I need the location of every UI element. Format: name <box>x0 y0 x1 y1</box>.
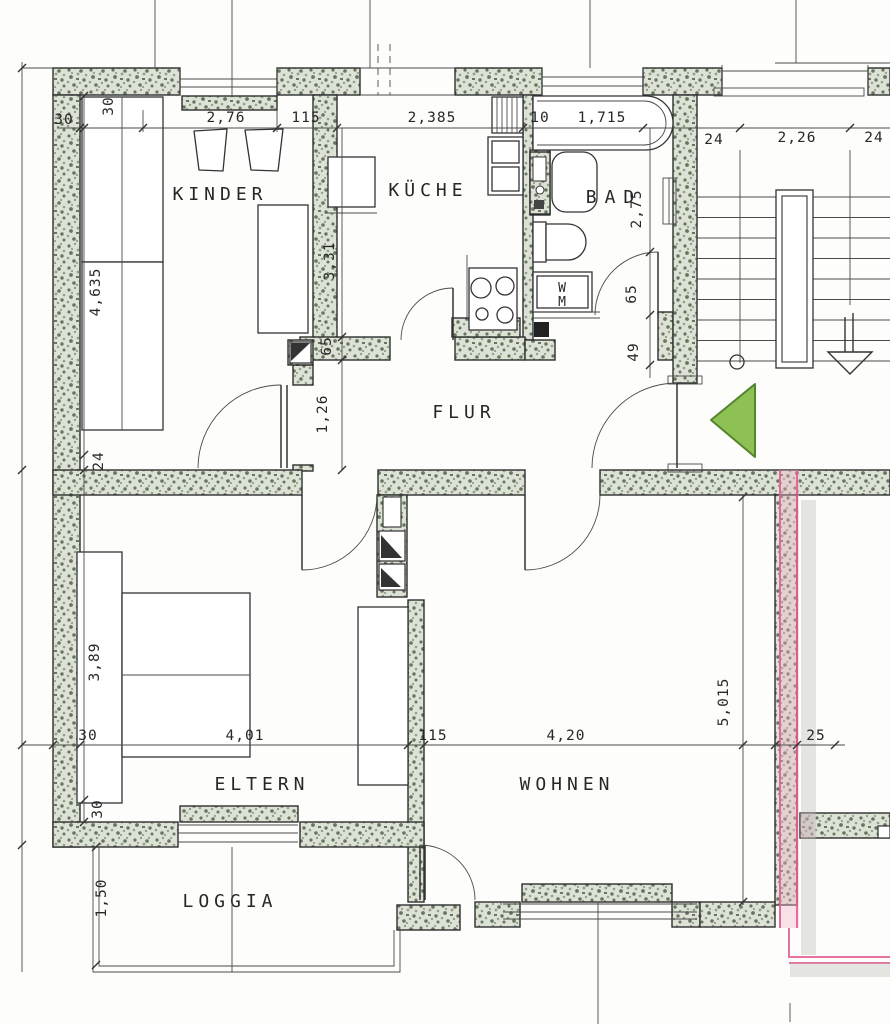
dim-wall-30: 30 <box>54 112 73 128</box>
dim-wall-25: 25 <box>806 728 825 744</box>
washing-machine-icon: W M <box>533 272 592 312</box>
dim-pier-115: 115 <box>291 110 320 126</box>
dim-bottom-pier-115: 115 <box>418 728 447 744</box>
toilet-icon <box>533 222 586 262</box>
kitchen-counter-icon <box>328 157 375 207</box>
dim-bad-niche: 49 <box>626 342 642 361</box>
floorplan-page: W M KINDER KÜCHE BAD FLUR ELTERN WOHNEN … <box>0 0 890 1024</box>
kinder-window-sill <box>182 96 277 110</box>
dim-wall-10: 10 <box>530 110 549 126</box>
dim-kueche-window: 2,385 <box>408 110 457 126</box>
bad-duct-icon <box>534 322 549 337</box>
dim-niche-65: 65 <box>319 336 335 355</box>
dim-bad-window: 1,715 <box>578 110 627 126</box>
floorplan-drawing: W M KINDER KÜCHE BAD FLUR ELTERN WOHNEN … <box>0 0 890 1024</box>
dim-stair-right: 24 <box>864 130 883 146</box>
kinder-bed <box>82 97 163 262</box>
kitchen-tall-unit-icon <box>488 137 523 195</box>
dim-stair-width: 2,26 <box>778 130 817 146</box>
flur-flue-icon <box>377 495 407 597</box>
dim-flur-width: 1,26 <box>315 395 331 434</box>
dim-kueche-depth: 3,31 <box>322 242 338 281</box>
dim-bottom-wall-30: 30 <box>78 728 97 744</box>
dim-sill-30: 30 <box>90 799 106 818</box>
room-label-kueche: KÜCHE <box>388 179 467 201</box>
room-label-wohnen: WOHNEN <box>519 774 614 795</box>
kinder-chair-icon <box>245 129 283 171</box>
dim-kinder-window: 2,76 <box>207 110 246 126</box>
stove-icon <box>469 268 517 330</box>
dim-eltern-width: 4,01 <box>226 728 265 744</box>
eltern-window-sill <box>180 806 298 822</box>
kinder-flue-icon <box>288 340 313 365</box>
room-label-loggia: LOGGIA <box>182 891 277 912</box>
dim-wohnen-depth: 5,015 <box>716 678 732 727</box>
kinder-chair-icon <box>194 129 227 171</box>
eltern-wardrobe <box>358 607 408 785</box>
wm-label-bottom: M <box>558 295 566 310</box>
kinder-desk <box>258 205 308 333</box>
dim-kinder-depth: 4,635 <box>88 268 104 317</box>
wm-label-top: W <box>558 281 566 296</box>
dim-eltern-depth: 3,89 <box>87 643 103 682</box>
dim-loggia-depth: 1,50 <box>94 879 110 918</box>
room-label-flur: FLUR <box>432 402 495 423</box>
dim-bad-door: 65 <box>624 284 640 303</box>
dim-wohnen-width: 4,20 <box>547 728 586 744</box>
dim-kinder-30: 30 <box>101 96 117 115</box>
room-label-eltern: ELTERN <box>214 774 309 795</box>
dim-bad-depth: 2,75 <box>629 190 645 229</box>
room-label-kinder: KINDER <box>172 184 267 205</box>
dim-wall-24: 24 <box>91 451 107 470</box>
bad-partition <box>530 152 550 214</box>
wohnen-window-sill <box>522 884 672 902</box>
dim-stair-left: 24 <box>704 132 723 148</box>
